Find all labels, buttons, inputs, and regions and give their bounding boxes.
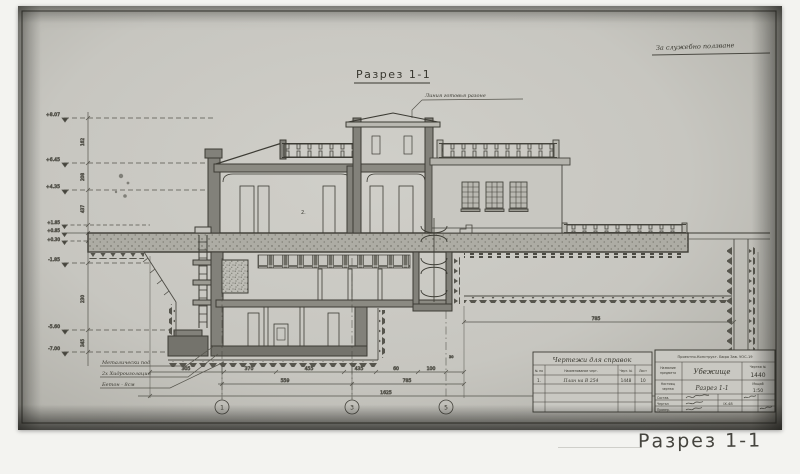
svg-text:Название: Название: [660, 366, 676, 370]
svg-text:+8.07: +8.07: [46, 112, 60, 118]
svg-text:Металически под: Металически под: [101, 360, 150, 366]
room-number: 2.: [301, 210, 306, 216]
svg-text:Провер.: Провер.: [657, 408, 670, 412]
terrace-balustrade: [562, 223, 687, 233]
svg-text:345: 345: [80, 339, 85, 347]
main-title-block: Проектно-Конструкт. Бюро Зав. УОС-19 Наз…: [655, 350, 775, 412]
svg-text:Разрез 1-1: Разрез 1-1: [694, 385, 728, 392]
svg-text:305: 305: [182, 366, 191, 372]
svg-text:230: 230: [80, 295, 85, 303]
svg-text:План на В 254: План на В 254: [563, 378, 599, 384]
svg-text:2х Хидроизолация: 2х Хидроизолация: [101, 371, 151, 377]
drawing-photo: Разрез 1-1 За служебно ползване Линия го…: [18, 6, 782, 430]
svg-text:-5.60: -5.60: [48, 324, 60, 330]
security-stamp: За служебно ползване: [656, 41, 735, 52]
roof-note-leader: [412, 100, 422, 118]
window: [485, 182, 504, 212]
right-building-elevation: [430, 140, 687, 233]
svg-text:30: 30: [449, 355, 454, 359]
top-annotations: Разрез 1-1 За служебно ползване Линия го…: [354, 41, 770, 118]
ground-slab: [88, 233, 770, 258]
roof-note: Линия готовья разоне: [424, 93, 486, 99]
svg-text:Убежище: Убежище: [693, 368, 730, 376]
ink-spots: [115, 174, 130, 198]
photo-caption: Разрез 1-1: [638, 430, 762, 453]
svg-text:1440: 1440: [750, 372, 765, 379]
svg-text:Чертал: Чертал: [657, 402, 669, 406]
section-drawing: Разрез 1-1 За служебно ползване Линия го…: [18, 6, 782, 430]
svg-text:162: 162: [80, 138, 85, 146]
drawing-title: Разрез 1-1: [356, 68, 431, 81]
svg-text:предмета: предмета: [660, 371, 676, 375]
svg-text:455: 455: [305, 366, 314, 372]
svg-text:3: 3: [350, 405, 354, 412]
svg-text:+4.35: +4.35: [46, 184, 60, 190]
svg-text:60: 60: [393, 366, 399, 372]
svg-text:10: 10: [640, 378, 646, 383]
svg-text:437: 437: [80, 205, 85, 213]
svg-text:Бетон - 8см: Бетон - 8см: [101, 382, 135, 388]
svg-text:-7.00: -7.00: [48, 346, 60, 352]
svg-text:435: 435: [355, 366, 364, 372]
svg-text:+0.30: +0.30: [47, 237, 60, 242]
svg-text:208: 208: [80, 173, 85, 181]
svg-text:1625: 1625: [380, 390, 392, 396]
svg-text:1:50: 1:50: [753, 388, 763, 394]
svg-text:5: 5: [444, 405, 448, 412]
window: [461, 182, 480, 212]
svg-text:Черт. №: Черт. №: [620, 369, 633, 373]
svg-text:+6.45: +6.45: [46, 157, 60, 163]
svg-text:IX.48: IX.48: [723, 402, 733, 406]
svg-text:785: 785: [403, 378, 412, 384]
svg-text:+0.85: +0.85: [47, 228, 60, 233]
svg-text:-1.85: -1.85: [48, 257, 60, 263]
svg-text:1: 1: [220, 405, 224, 412]
svg-text:Состав.: Состав.: [657, 396, 669, 400]
svg-text:Чертеж №: Чертеж №: [750, 365, 767, 369]
svg-text:1.: 1.: [537, 378, 541, 383]
above-ground-section: 2.: [205, 113, 440, 233]
svg-text:Настоящ: Настоящ: [661, 382, 675, 386]
caption-line: [558, 447, 640, 448]
svg-text:100: 100: [427, 366, 436, 372]
svg-text:№ по: № по: [535, 369, 543, 373]
svg-text:Лист: Лист: [639, 369, 647, 373]
svg-text:+1.85: +1.85: [47, 220, 60, 225]
svg-text:Наименование черт.: Наименование черт.: [564, 369, 598, 373]
svg-text:Мащаб: Мащаб: [752, 382, 763, 386]
ref-table: Чертежи для справок № по Наименование че…: [533, 352, 652, 412]
svg-text:чертеж: чертеж: [662, 387, 674, 391]
svg-text:Проектно-Конструкт. Бюро Зав.: Проектно-Конструкт. Бюро Зав. УОС-19: [677, 355, 753, 359]
window: [509, 182, 528, 212]
svg-text:1448: 1448: [621, 378, 632, 383]
svg-text:370: 370: [245, 366, 254, 372]
svg-text:785: 785: [592, 316, 601, 322]
svg-text:559: 559: [281, 378, 290, 384]
svg-text:Чертежи для справок: Чертежи для справок: [553, 356, 632, 364]
